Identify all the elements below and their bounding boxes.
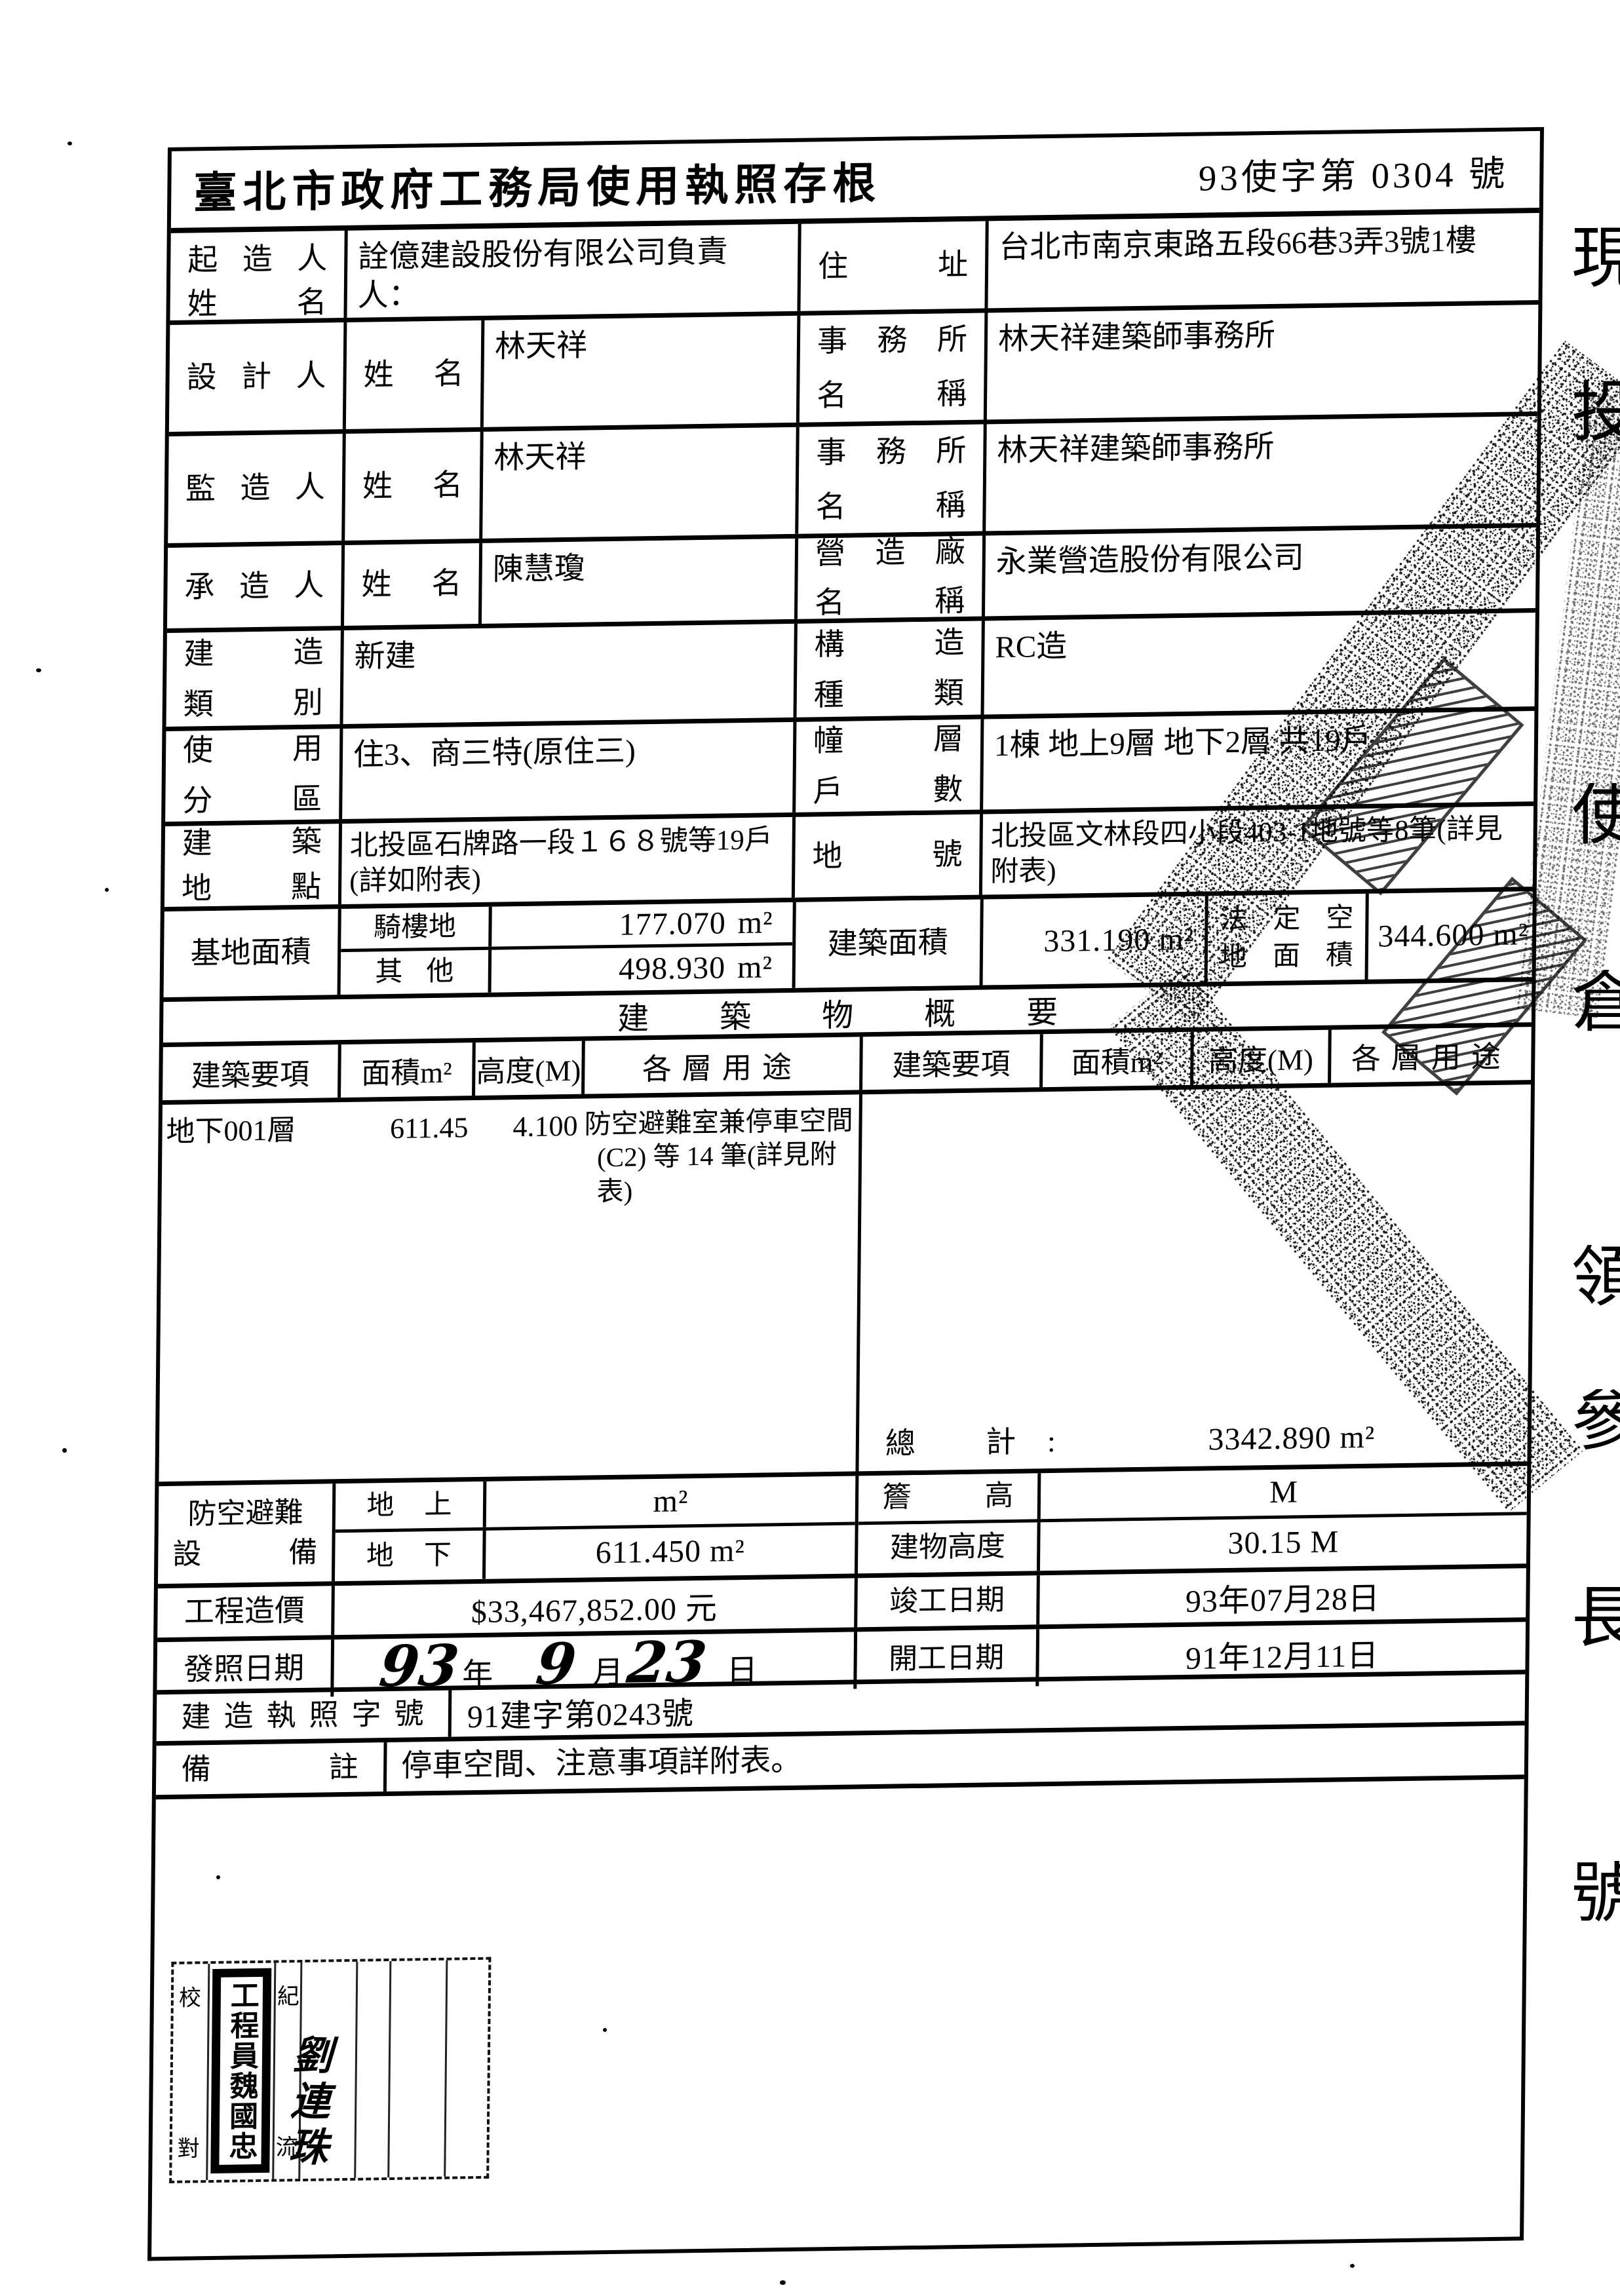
total-value: 3342.890 m² (1056, 1417, 1528, 1460)
eave-height-value: M (1041, 1466, 1528, 1519)
scan-speck (216, 1875, 220, 1879)
legal-open-space-value: 344.600 m² (1368, 891, 1533, 980)
scan-speck (67, 142, 72, 145)
proofread-top-label: 校 (179, 1987, 201, 2010)
shelter-values: 地 上 m² 地 下 611.450 m² (335, 1476, 858, 1581)
row-supervisor: 監 造 人 姓 名 林天祥 事 務 所 名 稱 林天祥建築師事務所 (168, 416, 1537, 548)
header-height-right: 高度(M) (1193, 1030, 1332, 1085)
overview-band-title: 建 築 物 概 要 (617, 985, 1078, 1038)
supervisor-sub-label: 姓 名 (345, 432, 484, 541)
floor-area: 611.45 (339, 1109, 474, 1212)
above-ground-label: 地 上 (336, 1482, 487, 1529)
scan-speck (36, 668, 41, 672)
record-cell: 紀 流 劉連珠 (274, 1962, 302, 2179)
handwritten-year: 93 (377, 1637, 462, 1695)
edge-fragment: 投 (1572, 380, 1620, 459)
site-value: 北投區石牌路一段１６８號等19戶(詳如附表) (341, 817, 796, 904)
storeys-value: 1棟 地上9層 地下2層 共19戶 (983, 711, 1534, 809)
designer-sub-label: 姓 名 (346, 320, 485, 429)
total-strip: 總 計: 3342.890 m² (858, 1407, 1528, 1471)
below-ground-label: 地 下 (335, 1530, 486, 1581)
edge-fragment: 現 (1572, 226, 1620, 305)
engineer-seal: 工程員魏國忠 (210, 1968, 271, 2173)
form-title: 臺北市政府工務局使用執照存根 (193, 147, 882, 221)
contractor-sub-label: 姓 名 (344, 543, 482, 626)
above-ground-value: m² (486, 1476, 856, 1527)
row-shelter: 防空避難 設 備 地 上 m² 地 下 611.450 m² (158, 1466, 1527, 1588)
site-label: 建 築 地 點 (164, 824, 342, 907)
designer-label: 設 計 人 (169, 322, 347, 432)
below-ground-value: 611.450 m² (486, 1525, 855, 1579)
build-class-value: 新建 (343, 624, 798, 724)
start-date-label: 開工日期 (857, 1629, 1039, 1689)
arcade-row: 騎樓地 177.070 m² (341, 902, 793, 952)
overview-right-half: 總 計: 3342.890 m² (858, 1084, 1531, 1471)
designer-office-value: 林天祥建築師事務所 (987, 305, 1539, 419)
designer-name: 林天祥 (484, 316, 801, 427)
eave-height-label: 簷 高 (858, 1473, 1041, 1521)
other-label-cell: 其 他 (341, 949, 492, 995)
stamp-empty-cell-3 (389, 1961, 448, 2177)
total-label: 總 計: (859, 1424, 1056, 1461)
overview-right-empty (859, 1084, 1531, 1417)
building-height-label: 建物高度 (858, 1522, 1041, 1574)
handwritten-signature: 劉連珠 (276, 2034, 339, 2173)
lot-number-label: 地 號 (795, 814, 983, 898)
completion-date-label: 竣工日期 (857, 1575, 1040, 1627)
shelter-above-row: 地 上 m² (336, 1476, 856, 1532)
completion-date-value: 93年07月28日 (1039, 1568, 1526, 1624)
header-area-left: 面積m² (341, 1043, 476, 1098)
issue-date-label: 發照日期 (157, 1639, 334, 1699)
structure-type-label: 構 造 種 類 (797, 621, 985, 717)
address-label: 住 址 (800, 221, 988, 311)
arcade-value: 177.070 m² (492, 902, 793, 946)
supervisor-office-label: 事 務 所 名 稱 (798, 424, 987, 533)
handwritten-month: 9 (533, 1636, 579, 1693)
header-item-right: 建築要項 (862, 1034, 1043, 1090)
document-number: 93使字第 0304 號 (1198, 143, 1508, 201)
permit-form-sheet: 臺北市政府工務局使用執照存根 93使字第 0304 號 起 造 人 姓 名 詮億… (147, 127, 1544, 2261)
floor-name: 地下001層 (161, 1111, 340, 1215)
contractor-name: 陳慧瓊 (482, 539, 798, 624)
scan-speck (1350, 2264, 1355, 2268)
header-height-left: 高度(M) (475, 1041, 585, 1096)
edge-fragment: 參 (1572, 1389, 1620, 1468)
lot-number-value: 北投區文林段四小段403-1地號等8筆(詳見附表) (982, 806, 1533, 894)
edge-fragment: 長 (1572, 1586, 1620, 1664)
header-item-left: 建築要項 (163, 1044, 341, 1100)
supervisor-label: 監 造 人 (168, 434, 346, 543)
contractor-office-value: 永業營造股份有限公司 (985, 527, 1536, 616)
other-row: 其 他 498.930 m² (341, 945, 793, 995)
proofread-bottom-label: 對 (178, 2138, 200, 2161)
header-area-right: 面積m² (1043, 1032, 1194, 1087)
address-value: 台北市南京東路五段66巷3弄3號1樓 (988, 213, 1539, 308)
contractor-office-label: 營 造 廠 名 稱 (798, 535, 986, 619)
base-area-label: 基地面積 (164, 909, 341, 997)
scanned-page: 臺北市政府工務局使用執照存根 93使字第 0304 號 起 造 人 姓 名 詮億… (0, 0, 1620, 2296)
zoning-label: 使 用 分 區 (165, 729, 343, 822)
supervisor-office-value: 林天祥建築師事務所 (986, 416, 1537, 531)
floor-height: 4.100 (474, 1108, 584, 1210)
remark-label: 備 註 (156, 1742, 387, 1795)
edge-fragment: 號 (1572, 1861, 1620, 1940)
header-use-left: 各層用途 (585, 1037, 863, 1094)
contractor-label: 承 造 人 (167, 545, 345, 628)
structure-type-value: RC造 (984, 613, 1535, 714)
arcade-label-cell: 騎樓地 (341, 907, 492, 949)
floor-use: 防空避難室兼停車空間 (C2) 等 14 筆(詳見附表) (583, 1103, 858, 1208)
build-class-label: 建 造 類 別 (166, 630, 344, 727)
owner-name-value: 詮億建設股份有限公司負責人： 林添裕 (347, 224, 801, 318)
supervisor-name: 林天祥 (482, 427, 800, 539)
height-rows: 簷 高 M 建物高度 30.15 M (858, 1466, 1527, 1573)
shelter-below-row: 地 下 611.450 m² (335, 1525, 855, 1581)
bottom-region: 校 對 工程員魏國忠 紀 流 劉連珠 (151, 1779, 1524, 2257)
cost-value: $33,467,852.00 元 (334, 1578, 858, 1635)
edge-fragment: 領 (1572, 1245, 1620, 1324)
owner-label: 起 造 人 姓 名 (170, 231, 347, 320)
designer-office-label: 事 務 所 名 稱 (800, 313, 988, 422)
stamp-empty-cell-2 (356, 1961, 391, 2178)
scan-speck (105, 888, 109, 892)
permit-number-label: 建造執照字號 (157, 1691, 452, 1742)
legal-open-space-label: 法 定 空 地 面 積 (1208, 894, 1369, 982)
edge-fragment: 倉 (1572, 970, 1620, 1048)
scan-speck (780, 2280, 786, 2285)
overview-data-row: 地下001層 611.45 4.100 防空避難室兼停車空間 (C2) 等 14… (159, 1084, 1531, 1486)
base-area-values: 騎樓地 177.070 m² 其 他 498.930 m² (341, 902, 796, 995)
storeys-label: 幢 層 戶 數 (796, 719, 984, 813)
basement-floor-line: 地下001層 611.45 4.100 防空避難室兼停車空間 (C2) 等 14… (161, 1094, 859, 1215)
proofread-cell: 校 對 (172, 1964, 210, 2181)
handwritten-day: 23 (624, 1634, 709, 1692)
record-top-label: 紀 (277, 1986, 299, 2009)
building-area-label: 建築面積 (796, 900, 984, 988)
row-designer: 設 計 人 姓 名 林天祥 事 務 所 名 稱 林天祥建築師事務所 (169, 305, 1539, 436)
overview-left-half: 地下001層 611.45 4.100 防空避難室兼停車空間 (C2) 等 14… (159, 1094, 862, 1482)
scan-speck (62, 1448, 67, 1453)
building-area-value: 331.190 m² (983, 896, 1208, 985)
cost-label: 工程造價 (157, 1586, 335, 1637)
header-use-right: 各層用途 (1331, 1027, 1532, 1083)
scan-speck (603, 2028, 607, 2032)
zoning-value: 住3、商三特(原住三) (342, 722, 796, 819)
other-value: 498.930 m² (492, 945, 793, 992)
edge-fragment: 使 (1572, 783, 1620, 862)
stamp-empty-cell-4 (446, 1960, 488, 2177)
approval-stamp-block: 校 對 工程員魏國忠 紀 流 劉連珠 (169, 1957, 491, 2183)
building-height-row: 建物高度 30.15 M (858, 1515, 1527, 1574)
building-height-value: 30.15 M (1040, 1515, 1527, 1571)
shelter-label: 防空避難 設 備 (158, 1483, 336, 1584)
engineer-seal-cell: 工程員魏國忠 (208, 1963, 276, 2181)
